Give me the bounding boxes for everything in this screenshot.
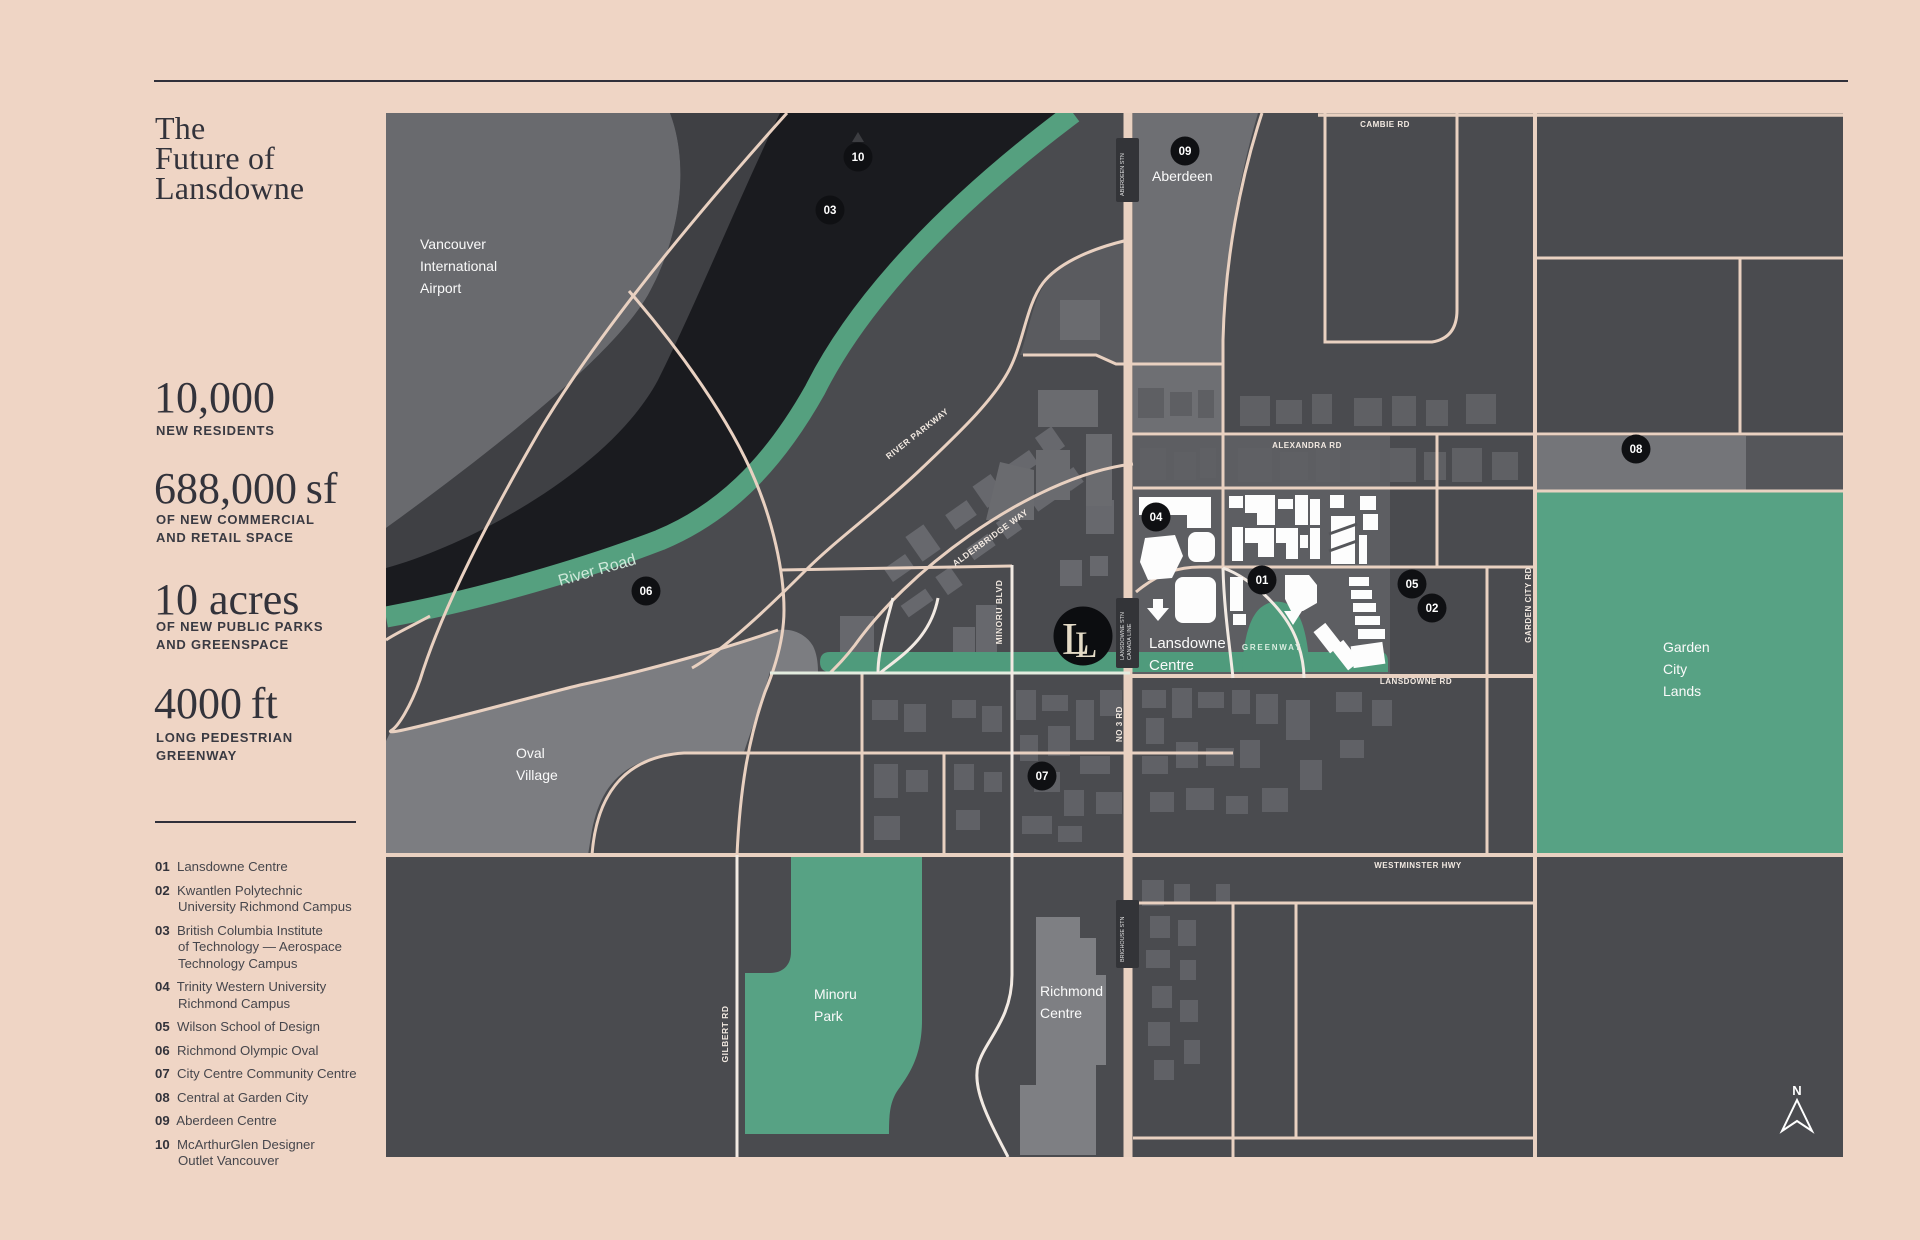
svg-text:GILBERT RD: GILBERT RD [720,1006,730,1063]
svg-text:LANSDOWNE RD: LANSDOWNE RD [1380,677,1452,686]
svg-text:L: L [1075,625,1098,666]
svg-text:ALEXANDRA RD: ALEXANDRA RD [1272,441,1342,450]
svg-text:GARDEN CITY RD: GARDEN CITY RD [1524,567,1533,643]
svg-text:Lands: Lands [1663,683,1701,699]
svg-text:04: 04 [1150,512,1163,524]
svg-text:City: City [1663,661,1687,677]
svg-text:08: 08 [1630,444,1643,456]
svg-text:Vancouver: Vancouver [420,236,486,252]
svg-text:Aberdeen: Aberdeen [1152,168,1213,184]
svg-text:Garden: Garden [1663,639,1710,655]
svg-text:LANSDOWNE STN: LANSDOWNE STN [1120,612,1126,660]
svg-text:GREENWAY: GREENWAY [1242,643,1302,652]
svg-text:07: 07 [1036,771,1049,783]
svg-text:01: 01 [1256,575,1269,587]
svg-text:05: 05 [1406,579,1419,591]
svg-text:10: 10 [852,152,865,164]
svg-text:03: 03 [824,205,837,217]
svg-text:NO 3 RD: NO 3 RD [1115,706,1124,742]
svg-text:BRIGHOUSE STN: BRIGHOUSE STN [1120,916,1126,962]
svg-text:WESTMINSTER HWY: WESTMINSTER HWY [1374,861,1462,870]
svg-text:ABERDEEN STN: ABERDEEN STN [1120,153,1126,196]
svg-text:CAMBIE RD: CAMBIE RD [1360,120,1410,129]
svg-text:02: 02 [1426,603,1439,615]
svg-text:Minoru: Minoru [814,986,857,1002]
svg-text:Centre: Centre [1149,657,1194,674]
svg-text:Village: Village [516,767,558,783]
svg-text:09: 09 [1179,146,1192,158]
svg-text:06: 06 [640,586,653,598]
svg-text:N: N [1792,1083,1801,1098]
svg-text:MINORU BLVD: MINORU BLVD [994,580,1004,645]
svg-text:CANADA LINE: CANADA LINE [1127,623,1133,660]
svg-text:Airport: Airport [420,280,461,296]
svg-text:Lansdowne: Lansdowne [1149,635,1226,652]
svg-text:Park: Park [814,1008,844,1024]
svg-text:International: International [420,258,497,274]
svg-text:Richmond: Richmond [1040,983,1103,999]
svg-text:Centre: Centre [1040,1005,1082,1021]
svg-text:Oval: Oval [516,745,545,761]
